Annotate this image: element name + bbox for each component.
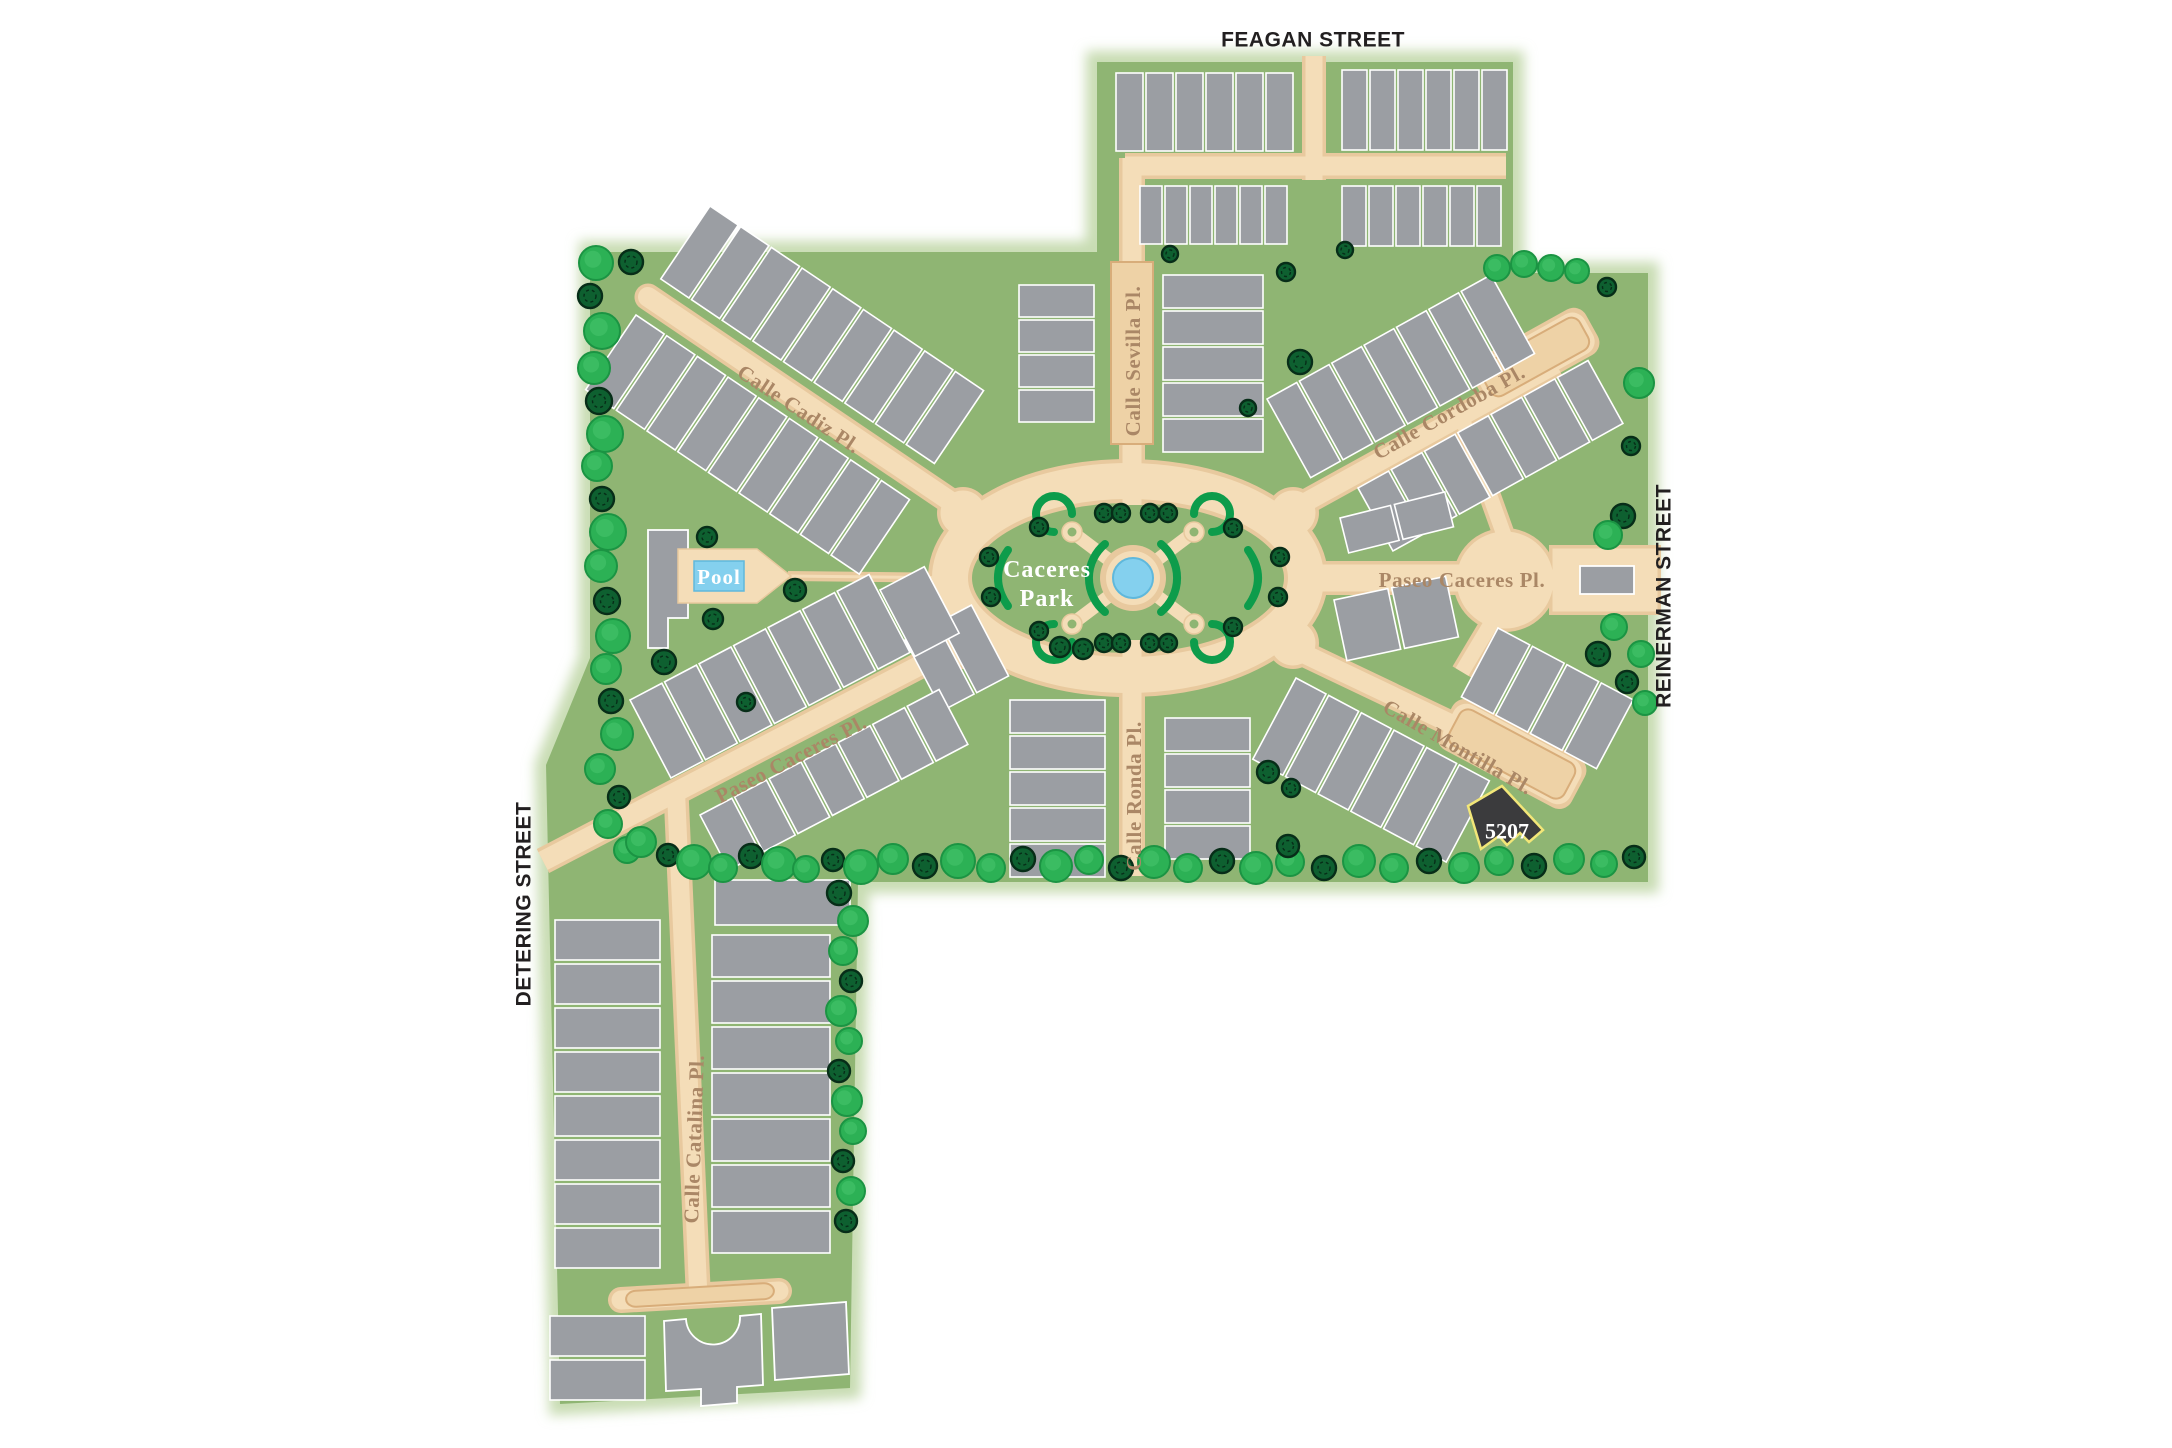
building bbox=[712, 1165, 830, 1207]
tree-icon bbox=[1141, 634, 1159, 652]
tree-icon bbox=[619, 250, 643, 274]
tree-highlight bbox=[831, 1000, 846, 1015]
tree-icon bbox=[1112, 634, 1130, 652]
tree-highlight bbox=[1488, 259, 1501, 272]
tree-icon bbox=[1159, 634, 1177, 652]
building bbox=[1010, 808, 1105, 841]
tree-icon bbox=[832, 1150, 854, 1172]
path-curl-center bbox=[1068, 528, 1077, 537]
building bbox=[550, 1316, 645, 1356]
road-circle bbox=[941, 491, 986, 536]
tree-icon bbox=[1095, 634, 1113, 652]
tree-highlight bbox=[981, 858, 995, 872]
building bbox=[1342, 70, 1367, 150]
street-label-paseo-caceres-east: Paseo Caceres Pl. bbox=[1379, 568, 1546, 592]
tree-icon bbox=[590, 487, 614, 511]
featured-lot-label: 5207 bbox=[1485, 819, 1529, 844]
building-row bbox=[712, 935, 830, 1253]
tree-highlight bbox=[1595, 855, 1608, 868]
tree-highlight bbox=[1384, 858, 1398, 872]
tree-icon bbox=[1141, 504, 1159, 522]
tree-icon bbox=[822, 849, 844, 871]
building bbox=[1176, 73, 1203, 151]
building bbox=[1396, 186, 1420, 246]
tree-highlight bbox=[1542, 259, 1555, 272]
building bbox=[1370, 70, 1395, 150]
tree-highlight bbox=[1079, 850, 1093, 864]
building bbox=[712, 1027, 830, 1069]
tree-highlight bbox=[883, 848, 898, 863]
path-curl-center bbox=[1190, 528, 1199, 537]
road-circle bbox=[1271, 621, 1316, 666]
building bbox=[1265, 186, 1287, 244]
tree-icon bbox=[784, 579, 806, 601]
tree-icon bbox=[1598, 278, 1616, 296]
building bbox=[1342, 186, 1366, 246]
building bbox=[712, 1119, 830, 1161]
building bbox=[1165, 790, 1250, 823]
building bbox=[1190, 186, 1212, 244]
tree-highlight bbox=[587, 455, 602, 470]
tree-icon bbox=[827, 881, 851, 905]
building bbox=[1266, 73, 1293, 151]
tree-highlight bbox=[596, 519, 614, 537]
tree-icon bbox=[594, 588, 620, 614]
building bbox=[1163, 347, 1263, 380]
tree-icon bbox=[1616, 671, 1638, 693]
tree-icon bbox=[652, 650, 676, 674]
building bbox=[712, 1073, 830, 1115]
path-curl-center bbox=[1190, 620, 1199, 629]
tree-icon bbox=[1224, 519, 1242, 537]
tree-icon bbox=[739, 844, 763, 868]
tree-highlight bbox=[1489, 851, 1503, 865]
tree-icon bbox=[1277, 835, 1299, 857]
building bbox=[1010, 736, 1105, 769]
tree-highlight bbox=[1629, 372, 1644, 387]
building bbox=[1140, 186, 1162, 244]
tree-icon bbox=[828, 1060, 850, 1082]
corner-building bbox=[772, 1302, 849, 1380]
building bbox=[1165, 186, 1187, 244]
tree-icon bbox=[586, 388, 612, 414]
building bbox=[1369, 186, 1393, 246]
tree-icon bbox=[1312, 856, 1336, 880]
tree-icon bbox=[1257, 761, 1279, 783]
road-circle bbox=[1271, 491, 1316, 536]
building bbox=[1165, 754, 1250, 787]
tree-icon bbox=[1586, 642, 1610, 666]
building bbox=[555, 920, 660, 960]
building bbox=[712, 935, 830, 977]
tree-highlight bbox=[841, 1181, 855, 1195]
tree-icon bbox=[1240, 400, 1256, 416]
tree-icon bbox=[1112, 504, 1130, 522]
tree-highlight bbox=[590, 758, 605, 773]
building bbox=[1146, 73, 1173, 151]
tree-highlight bbox=[849, 855, 866, 872]
building bbox=[1163, 275, 1263, 308]
building bbox=[1010, 772, 1105, 805]
tree-highlight bbox=[833, 941, 847, 955]
tree-highlight bbox=[1515, 255, 1528, 268]
road bbox=[788, 576, 965, 578]
tree-highlight bbox=[840, 1032, 853, 1045]
park-name-line1: Caceres bbox=[1003, 557, 1091, 583]
tree-highlight bbox=[713, 858, 727, 872]
building bbox=[1019, 320, 1094, 352]
building bbox=[1010, 700, 1105, 733]
tree-highlight bbox=[1605, 618, 1618, 631]
building bbox=[1477, 186, 1501, 246]
building bbox=[1165, 826, 1250, 859]
tree-icon bbox=[1162, 246, 1178, 262]
tree-highlight bbox=[1454, 857, 1469, 872]
tree-highlight bbox=[1045, 854, 1061, 870]
tree-highlight bbox=[843, 910, 858, 925]
tree-highlight bbox=[1637, 694, 1649, 706]
building bbox=[555, 1184, 660, 1224]
building bbox=[555, 1052, 660, 1092]
tree-highlight bbox=[631, 831, 646, 846]
tree-icon bbox=[913, 854, 937, 878]
site-plan-map: FEAGAN STREET REINERMAN STREET DETERING … bbox=[0, 0, 2172, 1448]
building bbox=[1163, 311, 1263, 344]
tree-highlight bbox=[1348, 849, 1364, 865]
tree-highlight bbox=[1559, 848, 1574, 863]
building bbox=[1454, 70, 1479, 150]
tree-highlight bbox=[1178, 858, 1192, 872]
tree-icon bbox=[1030, 622, 1048, 640]
building bbox=[1426, 70, 1451, 150]
building bbox=[1019, 390, 1094, 422]
building bbox=[712, 1211, 830, 1253]
building bbox=[1019, 355, 1094, 387]
building bbox=[1215, 186, 1237, 244]
path-curl-center bbox=[1068, 620, 1077, 629]
building bbox=[1398, 70, 1423, 150]
tree-icon bbox=[1282, 779, 1300, 797]
building bbox=[1240, 186, 1262, 244]
tree-highlight bbox=[590, 554, 606, 570]
pool-label: Pool bbox=[697, 565, 741, 589]
tree-icon bbox=[1522, 854, 1546, 878]
tree-icon bbox=[737, 693, 755, 711]
building bbox=[1334, 589, 1401, 661]
tree-highlight bbox=[1598, 525, 1612, 539]
tree-icon bbox=[1622, 437, 1640, 455]
tree-icon bbox=[980, 548, 998, 566]
tree-icon bbox=[1337, 242, 1353, 258]
tree-icon bbox=[835, 1210, 857, 1232]
building bbox=[555, 1228, 660, 1268]
tree-icon bbox=[840, 970, 862, 992]
park-name-line2: Park bbox=[1020, 586, 1075, 612]
street-label-feagan: FEAGAN STREET bbox=[1221, 29, 1405, 52]
tree-highlight bbox=[601, 624, 618, 641]
building bbox=[555, 1008, 660, 1048]
street-label-detering: DETERING STREET bbox=[513, 802, 536, 1007]
tree-icon bbox=[1011, 847, 1035, 871]
site-plan-page: FEAGAN STREET REINERMAN STREET DETERING … bbox=[0, 0, 2172, 1448]
tree-icon bbox=[657, 844, 679, 866]
tree-icon bbox=[1288, 350, 1312, 374]
street-label-calle-sevilla: Calle Sevilla Pl. bbox=[1121, 286, 1145, 437]
tree-highlight bbox=[1632, 645, 1645, 658]
fountain-water bbox=[1113, 558, 1153, 598]
tree-icon bbox=[1050, 637, 1070, 657]
building bbox=[1163, 419, 1263, 452]
tree-highlight bbox=[682, 850, 699, 867]
building bbox=[1165, 718, 1250, 751]
building bbox=[555, 964, 660, 1004]
building bbox=[712, 981, 830, 1023]
tree-icon bbox=[1623, 846, 1645, 868]
street-label-reinerman: REINERMAN STREET bbox=[1653, 484, 1676, 708]
tree-highlight bbox=[606, 722, 622, 738]
building bbox=[550, 1360, 645, 1400]
building bbox=[555, 1096, 660, 1136]
tree-highlight bbox=[1569, 262, 1581, 274]
gatehouse bbox=[1580, 566, 1634, 594]
building bbox=[1450, 186, 1474, 246]
tree-icon bbox=[1277, 263, 1295, 281]
tree-highlight bbox=[946, 849, 963, 866]
building bbox=[1206, 73, 1233, 151]
tree-icon bbox=[697, 527, 717, 547]
tree-highlight bbox=[593, 421, 611, 439]
tree-icon bbox=[1417, 849, 1441, 873]
tree-icon bbox=[1159, 504, 1177, 522]
building-row bbox=[1163, 275, 1263, 452]
street-label-calle-ronda: Calle Ronda Pl. bbox=[1122, 721, 1146, 871]
tree-icon bbox=[1271, 548, 1289, 566]
tree-icon bbox=[599, 689, 623, 713]
tree-highlight bbox=[837, 1090, 852, 1105]
tree-icon bbox=[1030, 518, 1048, 536]
tree-highlight bbox=[583, 356, 599, 372]
tree-icon bbox=[1224, 618, 1242, 636]
tree-highlight bbox=[797, 860, 810, 873]
building bbox=[555, 1140, 660, 1180]
tree-highlight bbox=[598, 814, 612, 828]
building bbox=[1423, 186, 1447, 246]
tree-icon bbox=[1210, 849, 1234, 873]
building bbox=[1116, 73, 1143, 151]
tree-highlight bbox=[767, 852, 784, 869]
tree-icon bbox=[1073, 639, 1093, 659]
tree-highlight bbox=[584, 251, 601, 268]
tree-icon bbox=[1269, 588, 1287, 606]
tree-highlight bbox=[590, 318, 608, 336]
tree-highlight bbox=[596, 658, 611, 673]
building bbox=[1019, 285, 1094, 317]
tree-icon bbox=[703, 609, 723, 629]
tree-highlight bbox=[844, 1122, 857, 1135]
tree-icon bbox=[608, 786, 630, 808]
tree-icon bbox=[578, 284, 602, 308]
tree-icon bbox=[1095, 504, 1113, 522]
tree-highlight bbox=[1245, 856, 1261, 872]
building bbox=[1482, 70, 1507, 150]
building bbox=[1236, 73, 1263, 151]
tree-icon bbox=[982, 588, 1000, 606]
